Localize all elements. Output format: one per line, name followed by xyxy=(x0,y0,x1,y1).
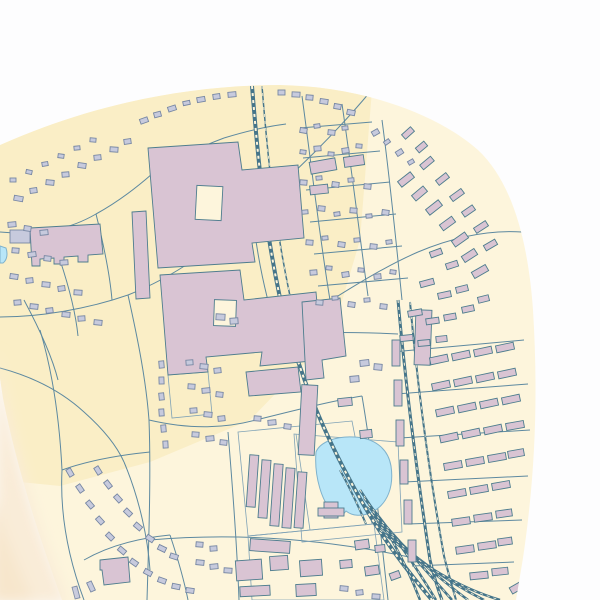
building-house xyxy=(278,90,285,95)
building-house xyxy=(28,251,37,257)
building-house xyxy=(220,440,227,446)
building-house xyxy=(24,226,32,232)
building-house xyxy=(342,126,348,131)
building-house xyxy=(332,296,338,301)
building-house xyxy=(374,364,382,371)
building-house xyxy=(26,278,33,284)
building-house xyxy=(348,178,354,183)
building-house xyxy=(224,568,232,574)
building-house xyxy=(62,172,69,178)
building-block xyxy=(270,555,289,570)
building-house xyxy=(192,432,199,437)
building-house xyxy=(78,316,85,321)
building-house xyxy=(200,364,208,370)
building-house xyxy=(218,416,225,422)
building-house xyxy=(228,92,236,98)
building-block xyxy=(299,559,322,576)
building-house xyxy=(159,393,165,400)
building-house xyxy=(159,377,164,384)
building-house xyxy=(196,560,204,566)
building-block xyxy=(436,335,448,342)
building-house xyxy=(196,542,203,548)
building-house xyxy=(204,412,212,418)
building-house xyxy=(10,273,19,279)
building-house xyxy=(190,408,197,413)
building-house xyxy=(58,286,66,292)
building-block xyxy=(404,500,412,524)
building-block xyxy=(498,537,513,546)
building-house xyxy=(374,274,381,280)
building-house xyxy=(40,230,48,236)
building-block xyxy=(318,508,344,516)
building-house xyxy=(14,300,21,306)
building-house xyxy=(8,222,16,228)
building-house xyxy=(163,441,168,448)
building-block xyxy=(235,559,262,581)
building-house xyxy=(284,424,291,430)
building-house xyxy=(328,152,334,157)
building-house xyxy=(318,206,325,212)
building-block xyxy=(338,397,353,406)
building-house xyxy=(380,304,387,310)
building-house xyxy=(316,300,323,306)
building-house xyxy=(30,304,38,310)
building-house xyxy=(390,270,396,275)
building-house xyxy=(197,96,206,102)
building-block xyxy=(360,429,373,438)
building-house xyxy=(213,94,221,100)
building-block xyxy=(408,540,416,562)
building-house xyxy=(110,147,118,153)
building-courtyard xyxy=(195,185,223,220)
building-block xyxy=(298,385,318,456)
building-house xyxy=(216,314,225,320)
building-house xyxy=(30,188,38,194)
building-house xyxy=(186,360,193,365)
building-house xyxy=(74,290,82,296)
building-house xyxy=(206,436,214,442)
building-house xyxy=(348,302,356,308)
building-block xyxy=(470,571,489,580)
building-house xyxy=(356,144,362,149)
building-house xyxy=(342,148,350,154)
building-house xyxy=(350,208,357,214)
building-block xyxy=(343,155,364,168)
building-house xyxy=(90,138,96,143)
building-house xyxy=(62,312,70,318)
building-block xyxy=(310,184,329,195)
building-block xyxy=(340,559,353,568)
building-house xyxy=(94,320,102,326)
map-viewport[interactable] xyxy=(0,0,600,600)
building-house xyxy=(14,195,24,201)
building-industrial xyxy=(246,367,301,396)
building-house xyxy=(334,212,340,217)
building-house xyxy=(254,416,261,422)
building-house xyxy=(364,298,370,303)
building-house xyxy=(202,388,210,394)
building-house xyxy=(216,392,223,398)
building-house xyxy=(58,154,64,159)
building-house xyxy=(360,360,370,367)
building-house xyxy=(354,238,360,243)
building-house xyxy=(124,139,132,145)
building-house xyxy=(340,586,348,592)
building-house xyxy=(74,146,80,151)
building-house xyxy=(210,564,218,570)
building-house xyxy=(10,178,16,182)
building-house xyxy=(214,368,221,374)
building-house xyxy=(322,236,328,241)
building-house xyxy=(320,98,329,104)
building-house xyxy=(382,210,390,216)
building-house xyxy=(314,124,320,129)
building-house xyxy=(314,146,321,152)
building-house xyxy=(230,318,238,325)
building-house xyxy=(306,95,313,101)
building-house xyxy=(310,270,317,276)
building-industrial xyxy=(100,557,130,585)
building-block xyxy=(364,565,379,576)
building-house xyxy=(316,176,322,181)
building-house xyxy=(300,127,308,133)
building-house xyxy=(183,100,191,105)
building-block xyxy=(392,340,400,366)
map-canvas xyxy=(0,0,600,600)
building-house xyxy=(210,546,217,551)
building-house xyxy=(268,420,276,426)
building-house xyxy=(328,130,335,136)
building-house xyxy=(26,169,33,174)
building-block xyxy=(296,583,317,596)
building-house xyxy=(306,240,313,246)
building-house xyxy=(372,594,380,600)
building-house xyxy=(364,184,371,190)
building-block xyxy=(240,585,270,597)
building-house xyxy=(161,425,167,432)
building-house xyxy=(342,272,350,278)
building-house xyxy=(332,182,340,188)
building-house xyxy=(12,248,19,254)
building-house xyxy=(334,103,342,109)
building-house xyxy=(356,590,363,596)
building-house xyxy=(78,162,87,168)
building-house xyxy=(370,244,377,250)
building-block xyxy=(354,539,369,550)
building-block xyxy=(250,539,291,554)
building-house xyxy=(44,256,51,262)
building-house xyxy=(366,214,372,219)
building-house xyxy=(42,162,49,167)
building-house xyxy=(186,587,195,593)
building-house xyxy=(347,109,356,116)
building-house xyxy=(172,583,181,590)
building-house xyxy=(350,376,359,383)
building-house xyxy=(292,92,300,97)
building-block xyxy=(400,460,408,484)
building-block xyxy=(418,339,430,346)
building-house xyxy=(46,180,54,186)
building-house xyxy=(326,266,332,271)
building-house xyxy=(10,230,30,243)
building-house xyxy=(94,155,101,161)
building-house xyxy=(159,409,164,416)
building-house xyxy=(300,150,306,155)
building-block xyxy=(426,317,440,325)
building-house xyxy=(386,240,392,245)
building-block xyxy=(492,567,509,576)
building-house xyxy=(338,242,346,248)
building-house xyxy=(159,361,165,368)
building-house xyxy=(302,210,308,215)
building-house xyxy=(300,180,307,186)
building-block xyxy=(396,420,404,446)
building-house xyxy=(60,260,68,266)
building-house xyxy=(358,268,364,273)
building-block xyxy=(394,380,402,406)
building-block xyxy=(400,334,414,341)
building-block xyxy=(375,544,386,552)
building-house xyxy=(188,384,195,389)
building-house xyxy=(42,282,50,288)
building-house xyxy=(46,308,54,314)
